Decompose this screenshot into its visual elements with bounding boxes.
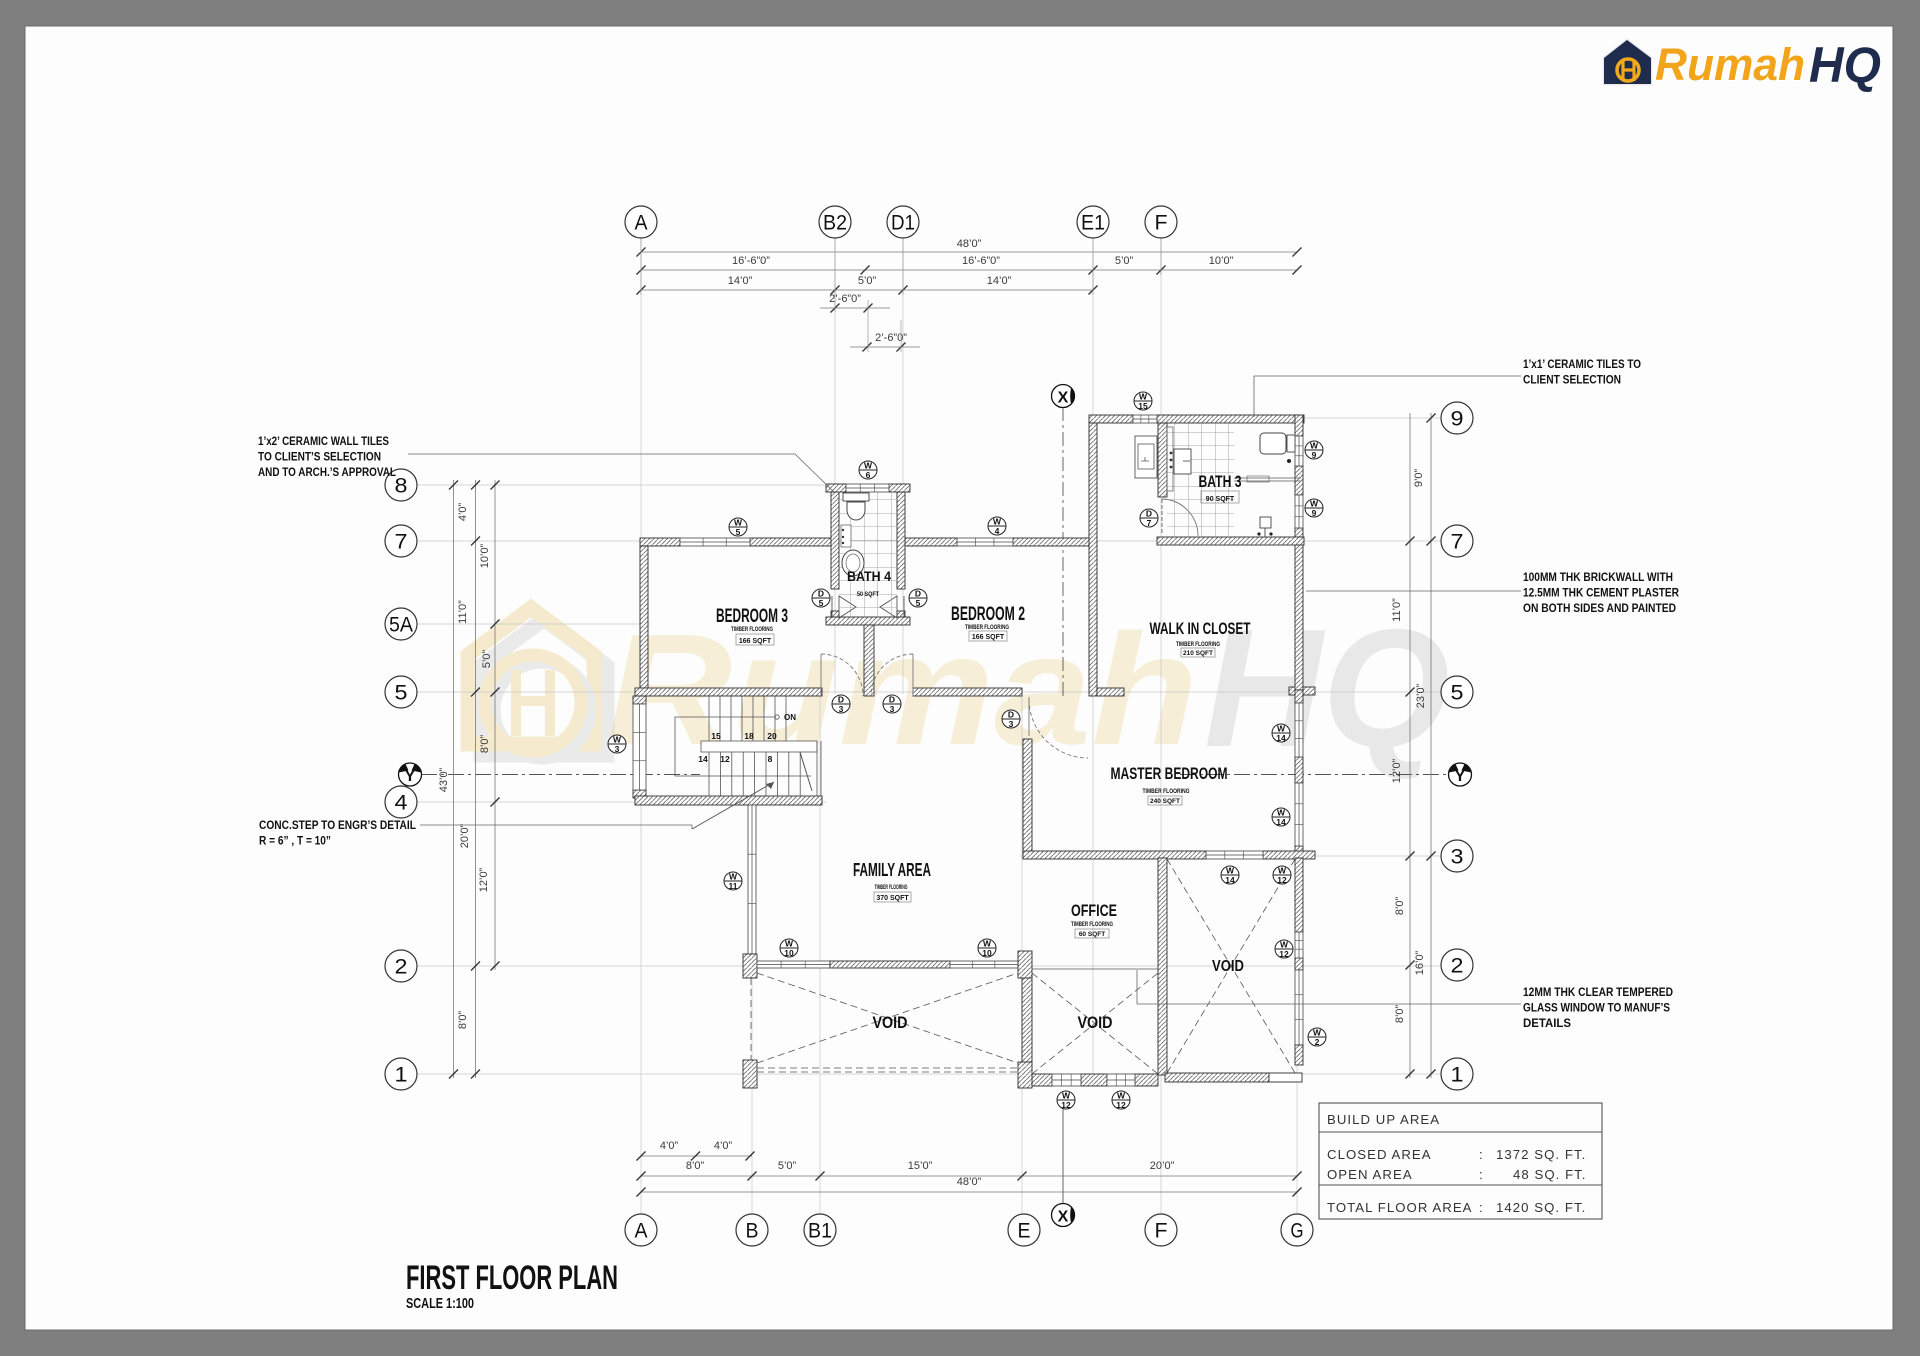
svg-text:D: D [1146, 509, 1152, 519]
svg-text:X: X [1058, 390, 1069, 407]
svg-text:CLOSED AREA: CLOSED AREA [1327, 1147, 1432, 1162]
svg-text:12’0”: 12’0” [478, 867, 490, 892]
svg-text:2’-6”0”: 2’-6”0” [829, 293, 861, 305]
svg-text:14’0”: 14’0” [987, 275, 1012, 287]
svg-text:90 SQFT: 90 SQFT [1206, 496, 1235, 503]
svg-text:23’0”: 23’0” [1415, 683, 1427, 708]
svg-text:8’0”: 8’0” [1394, 1004, 1406, 1023]
svg-text:9: 9 [1312, 508, 1317, 518]
svg-text:X: X [1058, 1209, 1069, 1226]
svg-text:W: W [1313, 1028, 1322, 1038]
svg-text::: : [1479, 1167, 1484, 1182]
svg-text:12: 12 [1277, 875, 1287, 885]
svg-text:4: 4 [995, 526, 1000, 536]
svg-text:VOID: VOID [1078, 1013, 1113, 1032]
svg-text:FIRST FLOOR PLAN: FIRST FLOOR PLAN [406, 1259, 618, 1297]
svg-text:5’0”: 5’0” [778, 1160, 797, 1172]
svg-text:B: B [745, 1220, 758, 1243]
svg-text:TIMBER FLOORING: TIMBER FLOORING [731, 626, 773, 633]
svg-text:W: W [1139, 392, 1148, 402]
svg-text:5: 5 [1450, 682, 1463, 705]
svg-text:W: W [1277, 724, 1286, 734]
svg-text:B1: B1 [808, 1220, 832, 1243]
svg-text:4: 4 [394, 792, 407, 815]
svg-text:5’0”: 5’0” [1115, 255, 1134, 267]
svg-text:D: D [838, 695, 844, 705]
svg-text:VOID: VOID [873, 1013, 908, 1032]
svg-text:11’0”: 11’0” [457, 600, 469, 624]
svg-text:2: 2 [1450, 955, 1463, 978]
svg-text:16’-6”0”: 16’-6”0” [962, 255, 1000, 267]
svg-text:GLASS WINDOW TO MANUF’S: GLASS WINDOW TO MANUF’S [1523, 1001, 1670, 1015]
svg-text:W: W [1280, 940, 1289, 950]
svg-text:50 SQFT: 50 SQFT [857, 591, 879, 598]
svg-text:5A: 5A [389, 614, 413, 637]
svg-text:16’0”: 16’0” [1414, 950, 1426, 975]
svg-text:D1: D1 [891, 212, 915, 235]
svg-text:7: 7 [1450, 531, 1463, 554]
svg-text:16’-6”0”: 16’-6”0” [732, 255, 770, 267]
svg-text:W: W [983, 939, 992, 949]
svg-text:12.5MM THK CEMENT PLASTER: 12.5MM THK CEMENT PLASTER [1523, 586, 1679, 600]
svg-text:2: 2 [1315, 1037, 1320, 1047]
svg-text:BUILD UP AREA: BUILD UP AREA [1327, 1112, 1440, 1127]
svg-text:1’x2’ CERAMIC WALL TILES: 1’x2’ CERAMIC WALL TILES [258, 436, 389, 448]
svg-text:8’0”: 8’0” [1394, 896, 1406, 915]
svg-text:43’0”: 43’0” [438, 767, 450, 792]
svg-text:A: A [634, 1220, 647, 1243]
svg-text:3: 3 [1009, 719, 1014, 729]
svg-text:G: G [1290, 1220, 1303, 1243]
svg-text:TIMBER FLOORING: TIMBER FLOORING [875, 884, 908, 891]
svg-text:W: W [1278, 866, 1287, 876]
svg-text:10’0”: 10’0” [479, 543, 491, 568]
svg-text:10: 10 [784, 948, 794, 958]
svg-text:8’0”: 8’0” [479, 734, 491, 753]
svg-text:14: 14 [1276, 817, 1286, 827]
svg-text:A: A [634, 212, 647, 235]
svg-text:BEDROOM 3: BEDROOM 3 [716, 606, 788, 627]
svg-text:10’0”: 10’0” [1209, 255, 1234, 267]
svg-text:4’0”: 4’0” [660, 1140, 679, 1152]
svg-text:8: 8 [768, 754, 773, 764]
svg-text:VOID: VOID [1212, 958, 1244, 975]
svg-text:BATH 3: BATH 3 [1199, 472, 1242, 491]
svg-text:W: W [1062, 1091, 1071, 1101]
svg-text:1420 SQ. FT.: 1420 SQ. FT. [1496, 1200, 1586, 1215]
svg-text:20’0”: 20’0” [1150, 1160, 1175, 1172]
svg-text:9: 9 [1312, 450, 1317, 460]
svg-text:3: 3 [839, 704, 844, 714]
svg-text:5’0”: 5’0” [858, 275, 877, 287]
svg-text:12: 12 [1279, 949, 1289, 959]
svg-text:12’0”: 12’0” [1391, 758, 1403, 783]
svg-text:5’0”: 5’0” [481, 649, 493, 668]
svg-text:5: 5 [736, 527, 741, 537]
svg-text:5: 5 [916, 598, 921, 608]
svg-text:BEDROOM 2: BEDROOM 2 [951, 604, 1025, 625]
svg-text::: : [1479, 1147, 1484, 1162]
svg-text:E1: E1 [1081, 212, 1105, 235]
svg-text:D: D [1008, 710, 1014, 720]
svg-text:15: 15 [711, 731, 721, 741]
svg-text:210 SQFT: 210 SQFT [1183, 650, 1213, 657]
svg-text:14’0”: 14’0” [728, 275, 753, 287]
svg-text:1: 1 [394, 1064, 407, 1087]
svg-text:HQ: HQ [1809, 37, 1881, 93]
svg-text:AND TO ARCH.’S APPROVAL: AND TO ARCH.’S APPROVAL [258, 467, 396, 479]
svg-text:Y: Y [405, 768, 416, 785]
svg-text:1’x1’ CERAMIC TILES TO: 1’x1’ CERAMIC TILES TO [1523, 359, 1641, 371]
svg-text:E: E [1017, 1220, 1030, 1243]
svg-text:240 SQFT: 240 SQFT [1150, 798, 1180, 805]
svg-text:60 SQFT: 60 SQFT [1079, 931, 1105, 938]
svg-text:D: D [889, 695, 895, 705]
svg-text:1: 1 [1450, 1064, 1463, 1087]
svg-text:48’0”: 48’0” [957, 238, 982, 250]
svg-text:48 SQ. FT.: 48 SQ. FT. [1513, 1167, 1587, 1182]
svg-text:11: 11 [729, 881, 738, 891]
svg-text:TO CLIENT’S SELECTION: TO CLIENT’S SELECTION [258, 452, 381, 464]
svg-text:F: F [1154, 1220, 1167, 1243]
svg-text:2: 2 [394, 956, 407, 979]
svg-text:TIMBER FLOORING: TIMBER FLOORING [1143, 788, 1190, 795]
svg-text:TOTAL FLOOR AREA: TOTAL FLOOR AREA [1327, 1200, 1473, 1215]
svg-text:R = 6” , T = 10”: R = 6” , T = 10” [259, 836, 331, 848]
svg-text:12MM THK CLEAR TEMPERED: 12MM THK CLEAR TEMPERED [1523, 985, 1673, 999]
svg-text:D: D [915, 589, 921, 599]
svg-text:D: D [818, 589, 824, 599]
svg-text:OFFICE: OFFICE [1071, 901, 1117, 920]
svg-text:3: 3 [615, 744, 620, 754]
svg-text:MASTER BEDROOM: MASTER BEDROOM [1111, 764, 1228, 783]
svg-text:W: W [1226, 866, 1235, 876]
svg-text:TIMBER FLOORING: TIMBER FLOORING [965, 624, 1009, 631]
svg-text:18: 18 [744, 731, 754, 741]
svg-text:3: 3 [1450, 846, 1463, 869]
svg-text:7: 7 [1147, 518, 1152, 528]
svg-text:8’0”: 8’0” [686, 1160, 705, 1172]
svg-text:W: W [785, 939, 794, 949]
svg-text:166 SQFT: 166 SQFT [972, 634, 1005, 641]
svg-text:W: W [1310, 441, 1319, 451]
svg-text:8’0”: 8’0” [457, 1010, 469, 1029]
svg-text:W: W [734, 518, 743, 528]
svg-text:14: 14 [698, 754, 708, 764]
svg-text:48’0”: 48’0” [957, 1176, 982, 1188]
svg-text::: : [1479, 1200, 1484, 1215]
svg-text:7: 7 [394, 531, 407, 554]
svg-text:W: W [729, 872, 738, 882]
svg-text:370 SQFT: 370 SQFT [876, 895, 909, 902]
svg-text:W: W [1117, 1091, 1126, 1101]
svg-text:12: 12 [1116, 1100, 1126, 1110]
svg-text:5: 5 [819, 598, 824, 608]
svg-text:SCALE 1:100: SCALE 1:100 [406, 1295, 474, 1312]
svg-text:B2: B2 [823, 212, 847, 235]
svg-text:WALK IN CLOSET: WALK IN CLOSET [1150, 619, 1251, 638]
svg-text:Rumah: Rumah [1655, 39, 1805, 90]
svg-text:W: W [1277, 808, 1286, 818]
svg-text:6: 6 [866, 470, 871, 480]
svg-text:14: 14 [1225, 875, 1235, 885]
svg-text:10: 10 [982, 948, 992, 958]
svg-text:CLIENT SELECTION: CLIENT SELECTION [1523, 375, 1621, 387]
svg-text:9: 9 [1450, 408, 1463, 431]
svg-text:4’0”: 4’0” [457, 502, 469, 521]
svg-text:TIMBER FLOORING: TIMBER FLOORING [1071, 921, 1113, 928]
svg-text:Y: Y [1455, 768, 1466, 785]
svg-text:W: W [993, 517, 1002, 527]
svg-text:166 SQFT: 166 SQFT [739, 638, 772, 645]
svg-text:ON: ON [784, 713, 796, 722]
svg-text:1372 SQ. FT.: 1372 SQ. FT. [1496, 1147, 1586, 1162]
svg-text:W: W [864, 461, 873, 471]
svg-text:20’0”: 20’0” [459, 823, 471, 848]
svg-text:15’0”: 15’0” [908, 1160, 933, 1172]
svg-text:OPEN AREA: OPEN AREA [1327, 1167, 1413, 1182]
svg-text:20: 20 [767, 731, 777, 741]
svg-text:4’0”: 4’0” [714, 1140, 733, 1152]
svg-text:11’0”: 11’0” [1391, 598, 1403, 622]
svg-text:8: 8 [394, 475, 407, 498]
svg-text:ON BOTH SIDES AND PAINTED: ON BOTH SIDES AND PAINTED [1523, 601, 1676, 615]
svg-text:BATH 4: BATH 4 [847, 568, 891, 584]
svg-text:3: 3 [890, 704, 895, 714]
svg-text:100MM THK BRICKWALL WITH: 100MM THK BRICKWALL WITH [1523, 570, 1673, 584]
svg-text:9’0”: 9’0” [1413, 468, 1425, 487]
svg-text:5: 5 [394, 682, 407, 705]
svg-text:CONC.STEP TO ENGR’S DETAIL: CONC.STEP TO ENGR’S DETAIL [259, 820, 416, 832]
svg-text:DETAILS: DETAILS [1523, 1016, 1571, 1030]
svg-text:15: 15 [1138, 401, 1148, 411]
svg-text:TIMBER FLOORING: TIMBER FLOORING [1176, 641, 1220, 648]
svg-text:2’-6”0”: 2’-6”0” [875, 332, 907, 344]
svg-text:FAMILY AREA: FAMILY AREA [853, 860, 931, 880]
svg-text:12: 12 [1061, 1100, 1071, 1110]
svg-text:12: 12 [720, 754, 730, 764]
svg-text:W: W [1310, 499, 1319, 509]
svg-text:F: F [1154, 212, 1167, 235]
svg-text:W: W [613, 735, 622, 745]
svg-text:14: 14 [1276, 733, 1286, 743]
